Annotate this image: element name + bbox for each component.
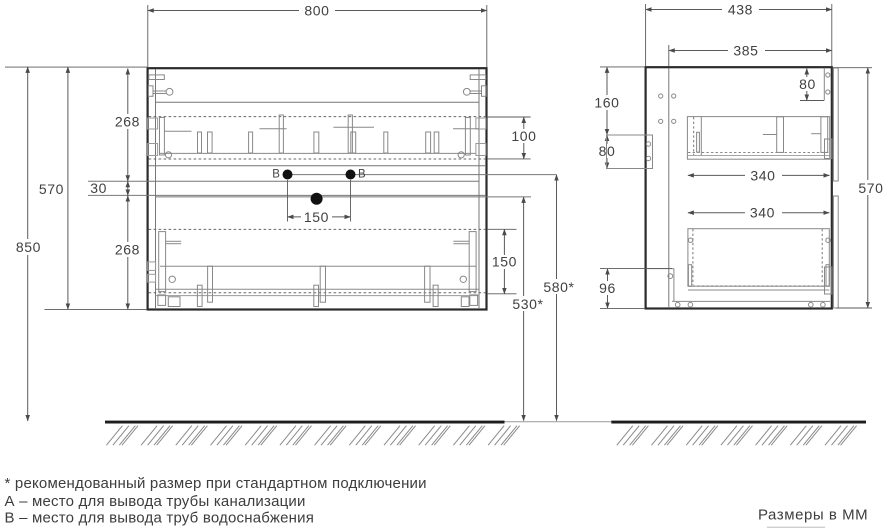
svg-text:Размеры в ММ: Размеры в ММ xyxy=(758,507,868,524)
svg-text:570: 570 xyxy=(39,181,64,197)
svg-text:580*: 580* xyxy=(543,279,574,295)
svg-text:100: 100 xyxy=(511,128,536,144)
svg-text:570: 570 xyxy=(858,180,883,196)
svg-text:530*: 530* xyxy=(512,296,543,312)
svg-text:438: 438 xyxy=(728,2,753,18)
svg-text:268: 268 xyxy=(115,114,140,130)
svg-text:150: 150 xyxy=(492,254,517,270)
svg-text:150: 150 xyxy=(304,209,329,225)
svg-text:B: B xyxy=(272,168,280,180)
svg-text:340: 340 xyxy=(750,168,775,184)
svg-text:850: 850 xyxy=(16,239,41,255)
svg-text:80: 80 xyxy=(799,76,816,92)
svg-text:340: 340 xyxy=(750,205,775,221)
svg-text:800: 800 xyxy=(304,3,329,19)
svg-text:96: 96 xyxy=(599,280,616,296)
svg-text:385: 385 xyxy=(733,43,758,59)
svg-text:* рекомендованный размер при с: * рекомендованный размер при стандартном… xyxy=(5,475,427,492)
svg-text:B: B xyxy=(358,168,366,180)
svg-text:268: 268 xyxy=(115,242,140,258)
svg-text:В – место для вывода труб водо: В – место для вывода труб водоснабжения xyxy=(5,510,315,527)
svg-text:160: 160 xyxy=(594,95,619,111)
svg-text:30: 30 xyxy=(90,180,107,196)
svg-text:А – место для вывода трубы кан: А – место для вывода трубы канализации xyxy=(5,493,306,510)
